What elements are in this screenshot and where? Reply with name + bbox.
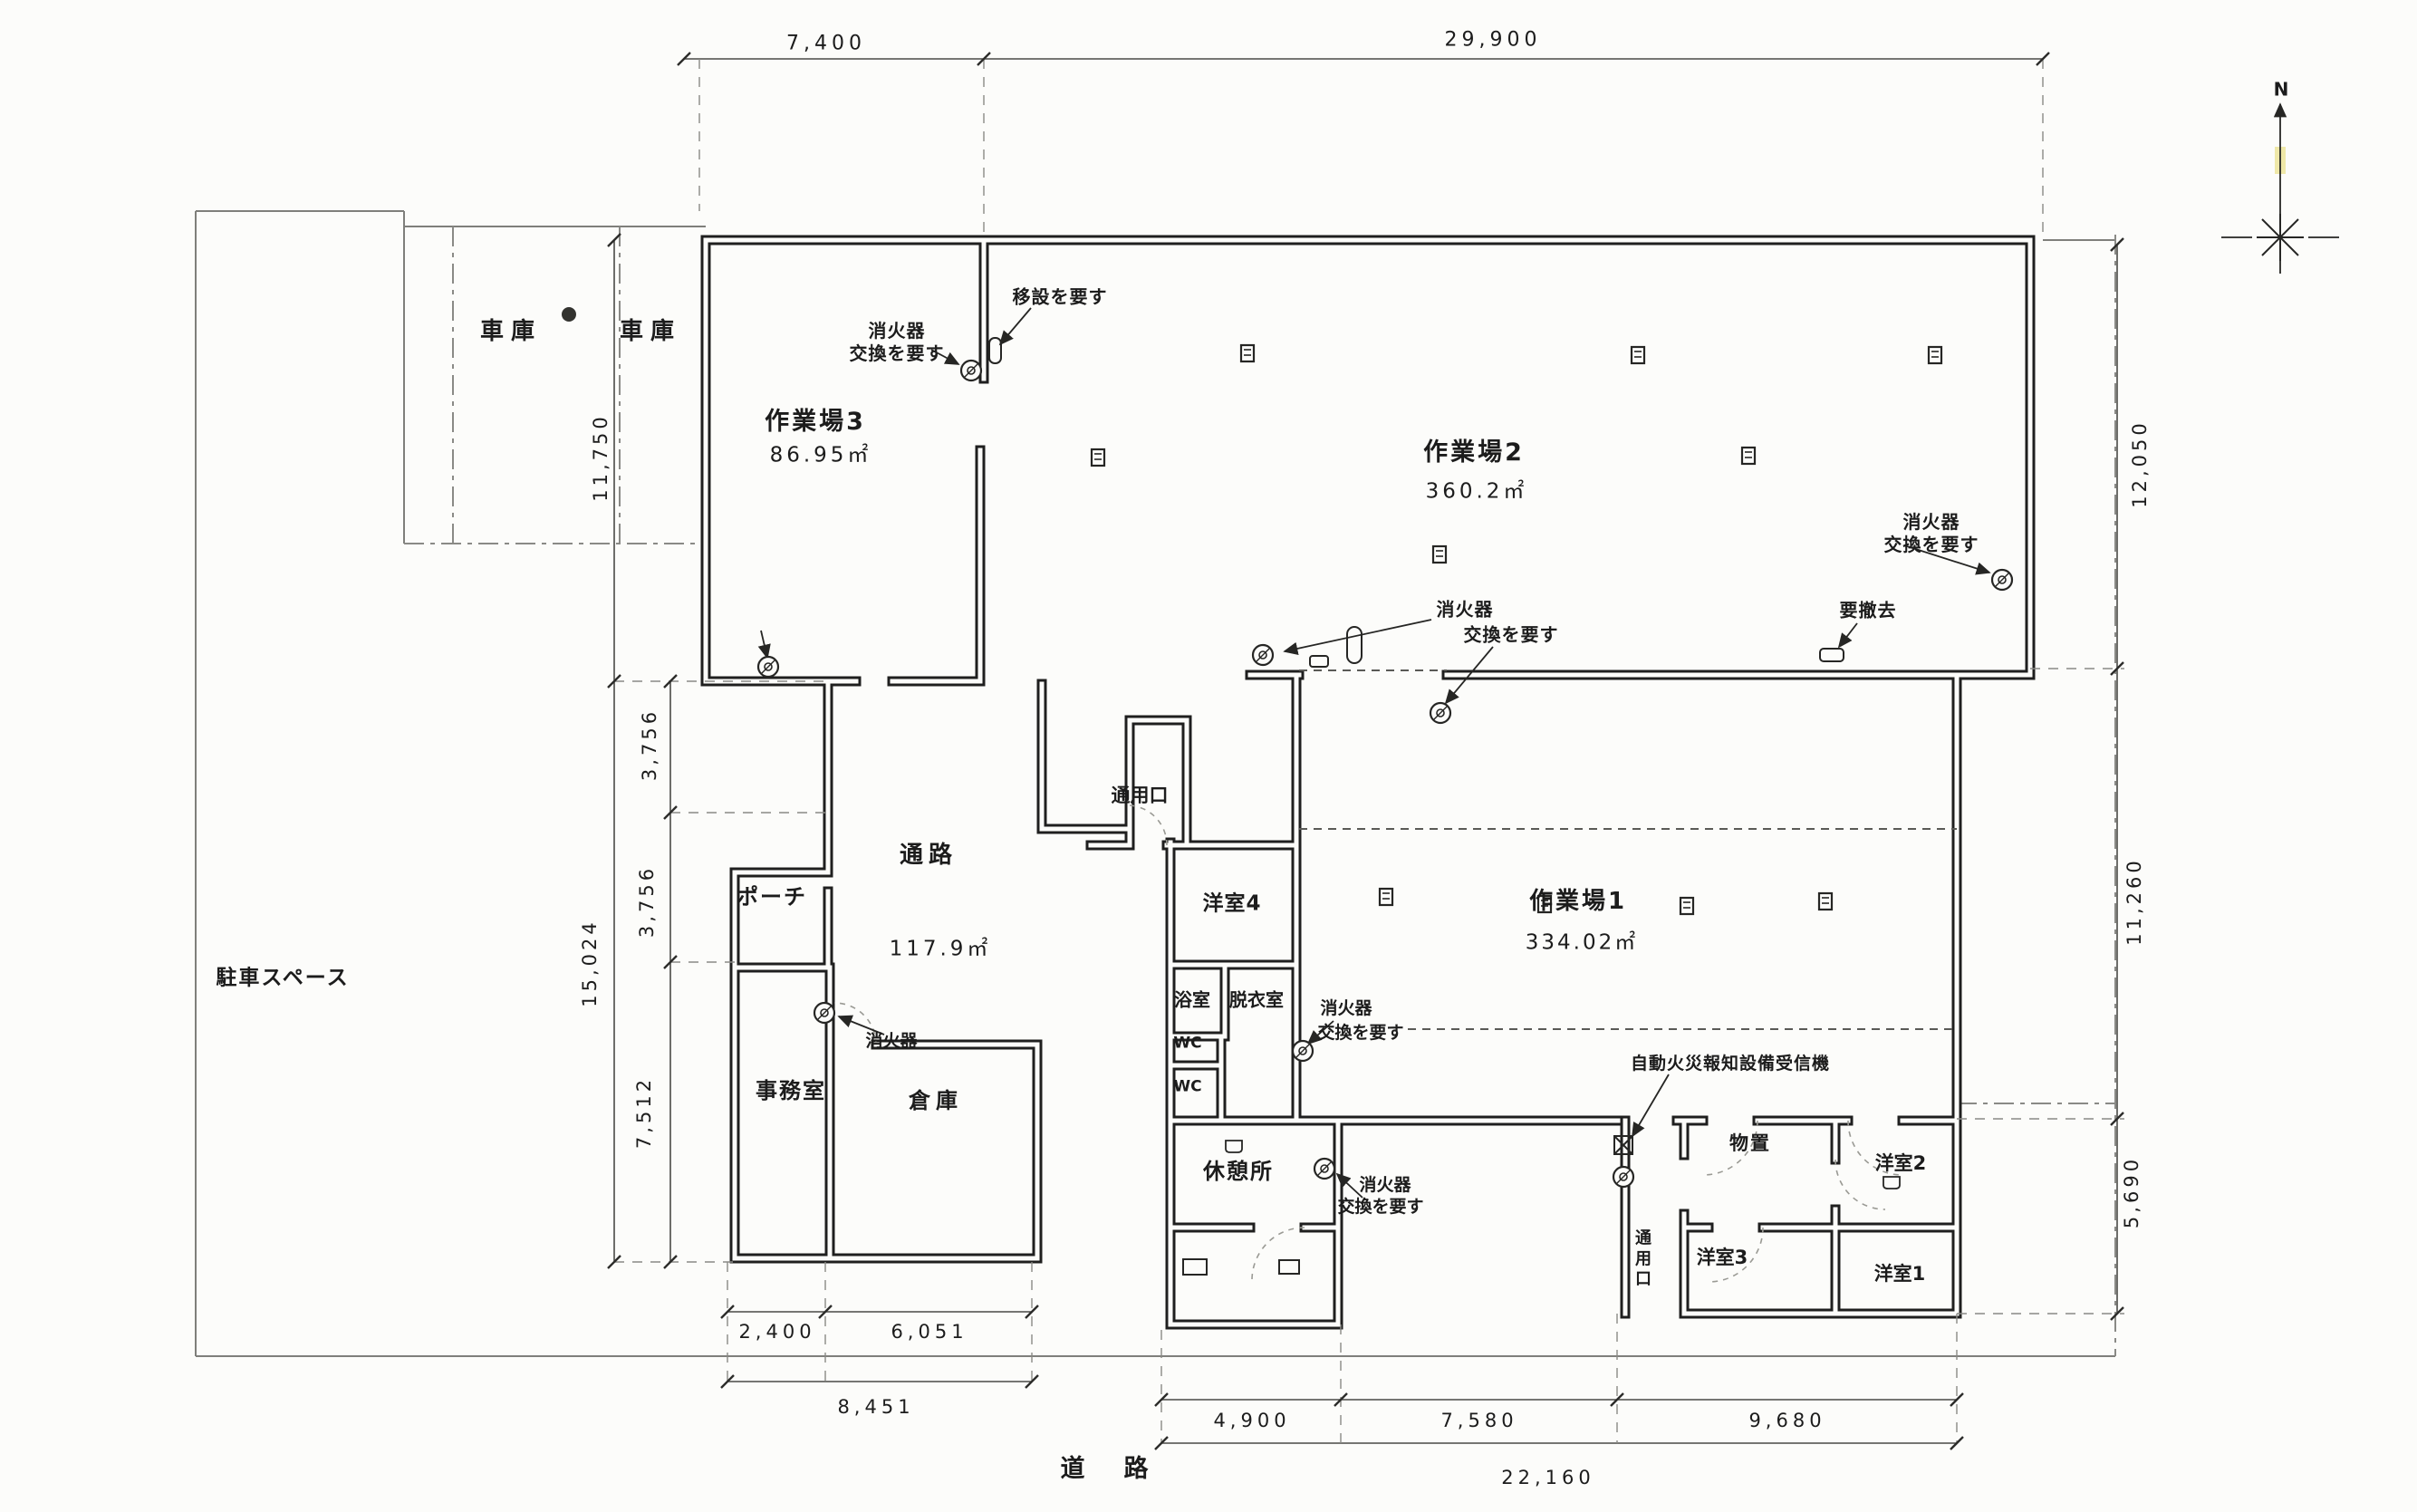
dim-right-11260: 11,260 xyxy=(2123,857,2146,945)
dim-right-5690: 5,690 xyxy=(2120,1156,2143,1228)
room-wc-1: WC xyxy=(1173,1034,1201,1053)
note-ext-mid: 消火器 xyxy=(1437,599,1494,621)
dim-bottom-6051: 6,051 xyxy=(891,1320,968,1343)
label-north: N xyxy=(2274,79,2289,101)
capsule-symbol xyxy=(989,338,1001,363)
extinguisher-icon xyxy=(1613,1167,1633,1187)
walls xyxy=(706,240,2030,1324)
extinguisher-icon xyxy=(1992,570,2012,590)
room-storage: 物置 xyxy=(1729,1132,1771,1155)
site-mark xyxy=(562,307,576,322)
dim-bottom-8451: 8,451 xyxy=(837,1395,914,1419)
note-fire-alarm: 自動火災報知設備受信機 xyxy=(1631,1054,1830,1075)
area-passage: 117.9㎡ xyxy=(890,937,992,963)
label-parking: 駐車スペース xyxy=(216,966,349,992)
opening-dashes xyxy=(1299,670,1957,1029)
extinguisher-icon xyxy=(814,1003,834,1023)
dimension-lines xyxy=(608,53,2124,1449)
room-yoshitsu4: 洋室4 xyxy=(1202,891,1261,918)
dim-bottom-22160: 22,160 xyxy=(1501,1466,1594,1489)
dim-top-29900: 29,900 xyxy=(1445,27,1542,53)
area-workshop3: 86.95㎡ xyxy=(770,443,872,469)
extinguisher-icon xyxy=(1430,703,1450,723)
room-rest: 休憩所 xyxy=(1203,1158,1274,1185)
area-workshop1: 334.02㎡ xyxy=(1526,930,1638,957)
note-relocate: 移設を要す xyxy=(1013,286,1108,309)
note-remove: 要撤去 xyxy=(1840,600,1897,622)
fixture-symbols xyxy=(1183,1141,1900,1275)
note-ext-rest-replace: 交換を要す xyxy=(1337,1197,1423,1218)
note-ext-office: 消火器 xyxy=(865,1031,917,1053)
label-road: 道 路 xyxy=(1061,1454,1156,1485)
extinguisher-icon xyxy=(1314,1159,1334,1179)
dim-left-15024: 15,024 xyxy=(578,919,602,1006)
note-ext-mid-replace: 交換を要す xyxy=(1464,624,1559,647)
room-entrance-top: 通用口 xyxy=(1112,784,1169,807)
capsule-symbol xyxy=(1347,627,1362,663)
room-wc-2: WC xyxy=(1173,1077,1201,1096)
room-garage-1: 車庫 xyxy=(480,317,542,347)
dim-bottom-2400: 2,400 xyxy=(738,1320,815,1343)
dim-bottom-9680: 9,680 xyxy=(1748,1409,1825,1432)
dim-left-3756a: 3,756 xyxy=(638,708,661,781)
extinguisher-icon xyxy=(1293,1041,1313,1061)
room-dressing: 脱衣室 xyxy=(1229,989,1284,1012)
floor-plan-drawing xyxy=(0,0,2417,1512)
room-garage-2: 車庫 xyxy=(620,317,681,347)
dimension-ticks xyxy=(608,53,2123,1449)
note-ext-bath: 消火器 xyxy=(1320,998,1372,1020)
dim-left-7512: 7,512 xyxy=(632,1076,656,1149)
extinguisher-icon xyxy=(1253,645,1273,665)
area-workshop2: 360.2㎡ xyxy=(1426,479,1528,506)
room-passage: 通路 xyxy=(900,841,958,871)
extinguisher-icon xyxy=(961,361,981,380)
note-ext-replace-right: 消火器 交換を要す xyxy=(1884,511,1979,556)
dim-right-12050: 12,050 xyxy=(2128,419,2152,507)
north-arrow xyxy=(2221,104,2339,274)
room-porch: ポーチ xyxy=(737,883,807,910)
note-ext-bath-replace: 交換を要す xyxy=(1317,1023,1403,1045)
room-office: 事務室 xyxy=(756,1077,826,1104)
dim-bottom-4900: 4,900 xyxy=(1213,1409,1290,1432)
extinguisher-icon xyxy=(758,657,778,677)
note-ext-rest: 消火器 xyxy=(1359,1175,1411,1197)
room-entrance-bottom: 通 用 口 xyxy=(1635,1228,1651,1290)
fitting-symbol xyxy=(1310,656,1328,667)
room-yoshitsu3: 洋室3 xyxy=(1697,1246,1748,1269)
dim-bottom-7580: 7,580 xyxy=(1440,1409,1517,1432)
dim-top-7400: 7,400 xyxy=(786,31,866,56)
room-workshop2: 作業場2 xyxy=(1423,438,1525,468)
room-bath: 浴室 xyxy=(1174,989,1210,1012)
room-workshop3: 作業場3 xyxy=(765,407,866,438)
dim-left-3756b: 3,756 xyxy=(635,865,659,938)
room-workshop1: 作業場1 xyxy=(1529,887,1627,917)
dim-left-11750: 11,750 xyxy=(589,413,612,501)
room-yoshitsu1: 洋室1 xyxy=(1874,1262,1926,1286)
room-yoshitsu2: 洋室2 xyxy=(1875,1151,1927,1175)
floor-plan-sheet: 7,40029,900車庫車庫消火器 交換を要す移設を要す作業場386.95㎡作… xyxy=(0,0,2417,1512)
room-warehouse: 倉庫 xyxy=(909,1087,963,1114)
removed-unit-symbol xyxy=(1820,649,1844,661)
note-ext-replace-top: 消火器 交換を要す xyxy=(850,320,945,365)
